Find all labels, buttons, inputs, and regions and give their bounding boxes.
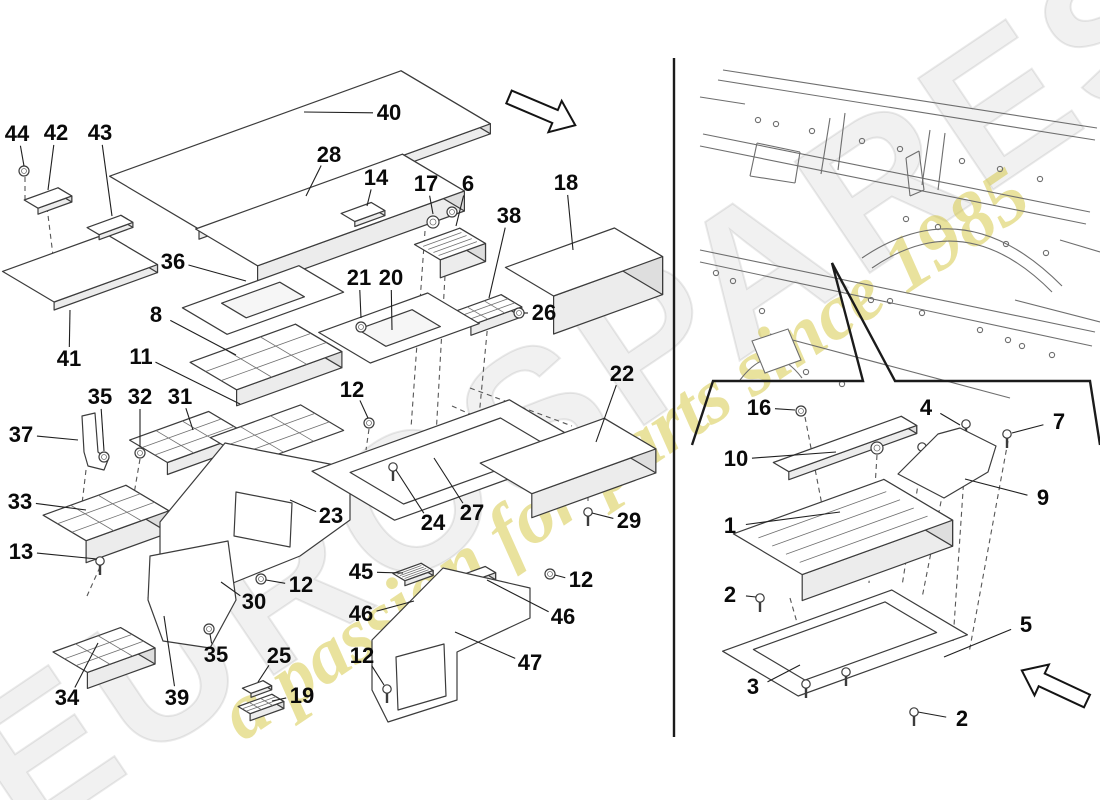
part-number-text: 2 [724,582,736,607]
part-number-text: 31 [168,384,192,409]
part-nut-35b [204,624,214,634]
part-number-text: 41 [57,346,81,371]
part-number-text: 12 [569,567,593,592]
part-number-text: 17 [414,171,438,196]
part-number-text: 38 [497,203,521,228]
part-number-text: 35 [88,384,112,409]
part-nut-17 [427,216,439,228]
part-number-text: 18 [554,170,578,195]
part-number-text: 35 [204,642,228,667]
leader-line [69,310,70,347]
exploded-parts-diagram: EUROSPARES a passion for parts since 198… [0,0,1100,800]
part-number-text: 43 [88,120,112,145]
part-number-text: 27 [460,500,484,525]
part-number-text: 12 [340,377,364,402]
part-number-text: 40 [377,100,401,125]
part-number-text: 10 [724,446,748,471]
part-number-text: 19 [290,683,314,708]
part-number-text: 12 [289,572,313,597]
part-number-text: 46 [349,601,373,626]
part-number-text: 5 [1020,612,1032,637]
part-number-text: 23 [319,503,343,528]
part-number-text: 6 [462,171,474,196]
parts-diagram-page: EUROSPARES a passion for parts since 198… [0,0,1100,800]
part-nut-32 [135,448,145,458]
part-number-text: 16 [747,395,771,420]
part-number-text: 3 [747,674,759,699]
part-number-text: 33 [8,489,32,514]
part-number-text: 21 [347,265,371,290]
part-number-text: 32 [128,384,152,409]
part-nut-21 [356,322,366,332]
part-nut-26 [514,308,524,318]
part-number-text: 11 [129,344,152,369]
part-number-text: 25 [267,643,291,668]
part-number-text: 13 [9,539,33,564]
leader-line [391,290,392,330]
part-number-text: 7 [1053,409,1065,434]
leader-line [377,572,403,573]
part-nut-rail [871,442,883,454]
part-number-text: 14 [364,165,389,190]
part-nut-16 [796,406,806,416]
part-number-text: 9 [1037,485,1049,510]
part-nut-6-column [447,207,457,217]
part-number-text: 44 [5,121,30,146]
part-number-text: 30 [242,589,266,614]
part-nut-12a [364,418,374,428]
part-number-text: 1 [724,513,736,538]
part-nut-35a [99,452,109,462]
part-number-text: 8 [150,302,162,327]
part-number-text: 36 [161,249,185,274]
part-number-text: 24 [421,510,446,535]
part-nut-12-mid [256,574,266,584]
part-number-text: 29 [617,508,641,533]
part-number-text: 34 [55,685,80,710]
part-number-text: 4 [920,395,933,420]
part-number-text: 20 [379,265,403,290]
part-number-text: 45 [349,559,373,584]
part-number-text: 12 [350,643,374,668]
part-number-text: 28 [317,142,341,167]
part-number-text: 39 [165,685,189,710]
part-number-text: 2 [956,706,968,731]
part-number-text: 46 [551,604,575,629]
part-number-text: 42 [44,120,68,145]
part-number-text: 37 [9,422,33,447]
part-number-text: 22 [610,361,634,386]
part-nut-12-47 [545,569,555,579]
part-number-text: 47 [518,650,542,675]
part-number-text: 26 [532,300,556,325]
part-nut-44 [19,166,29,176]
